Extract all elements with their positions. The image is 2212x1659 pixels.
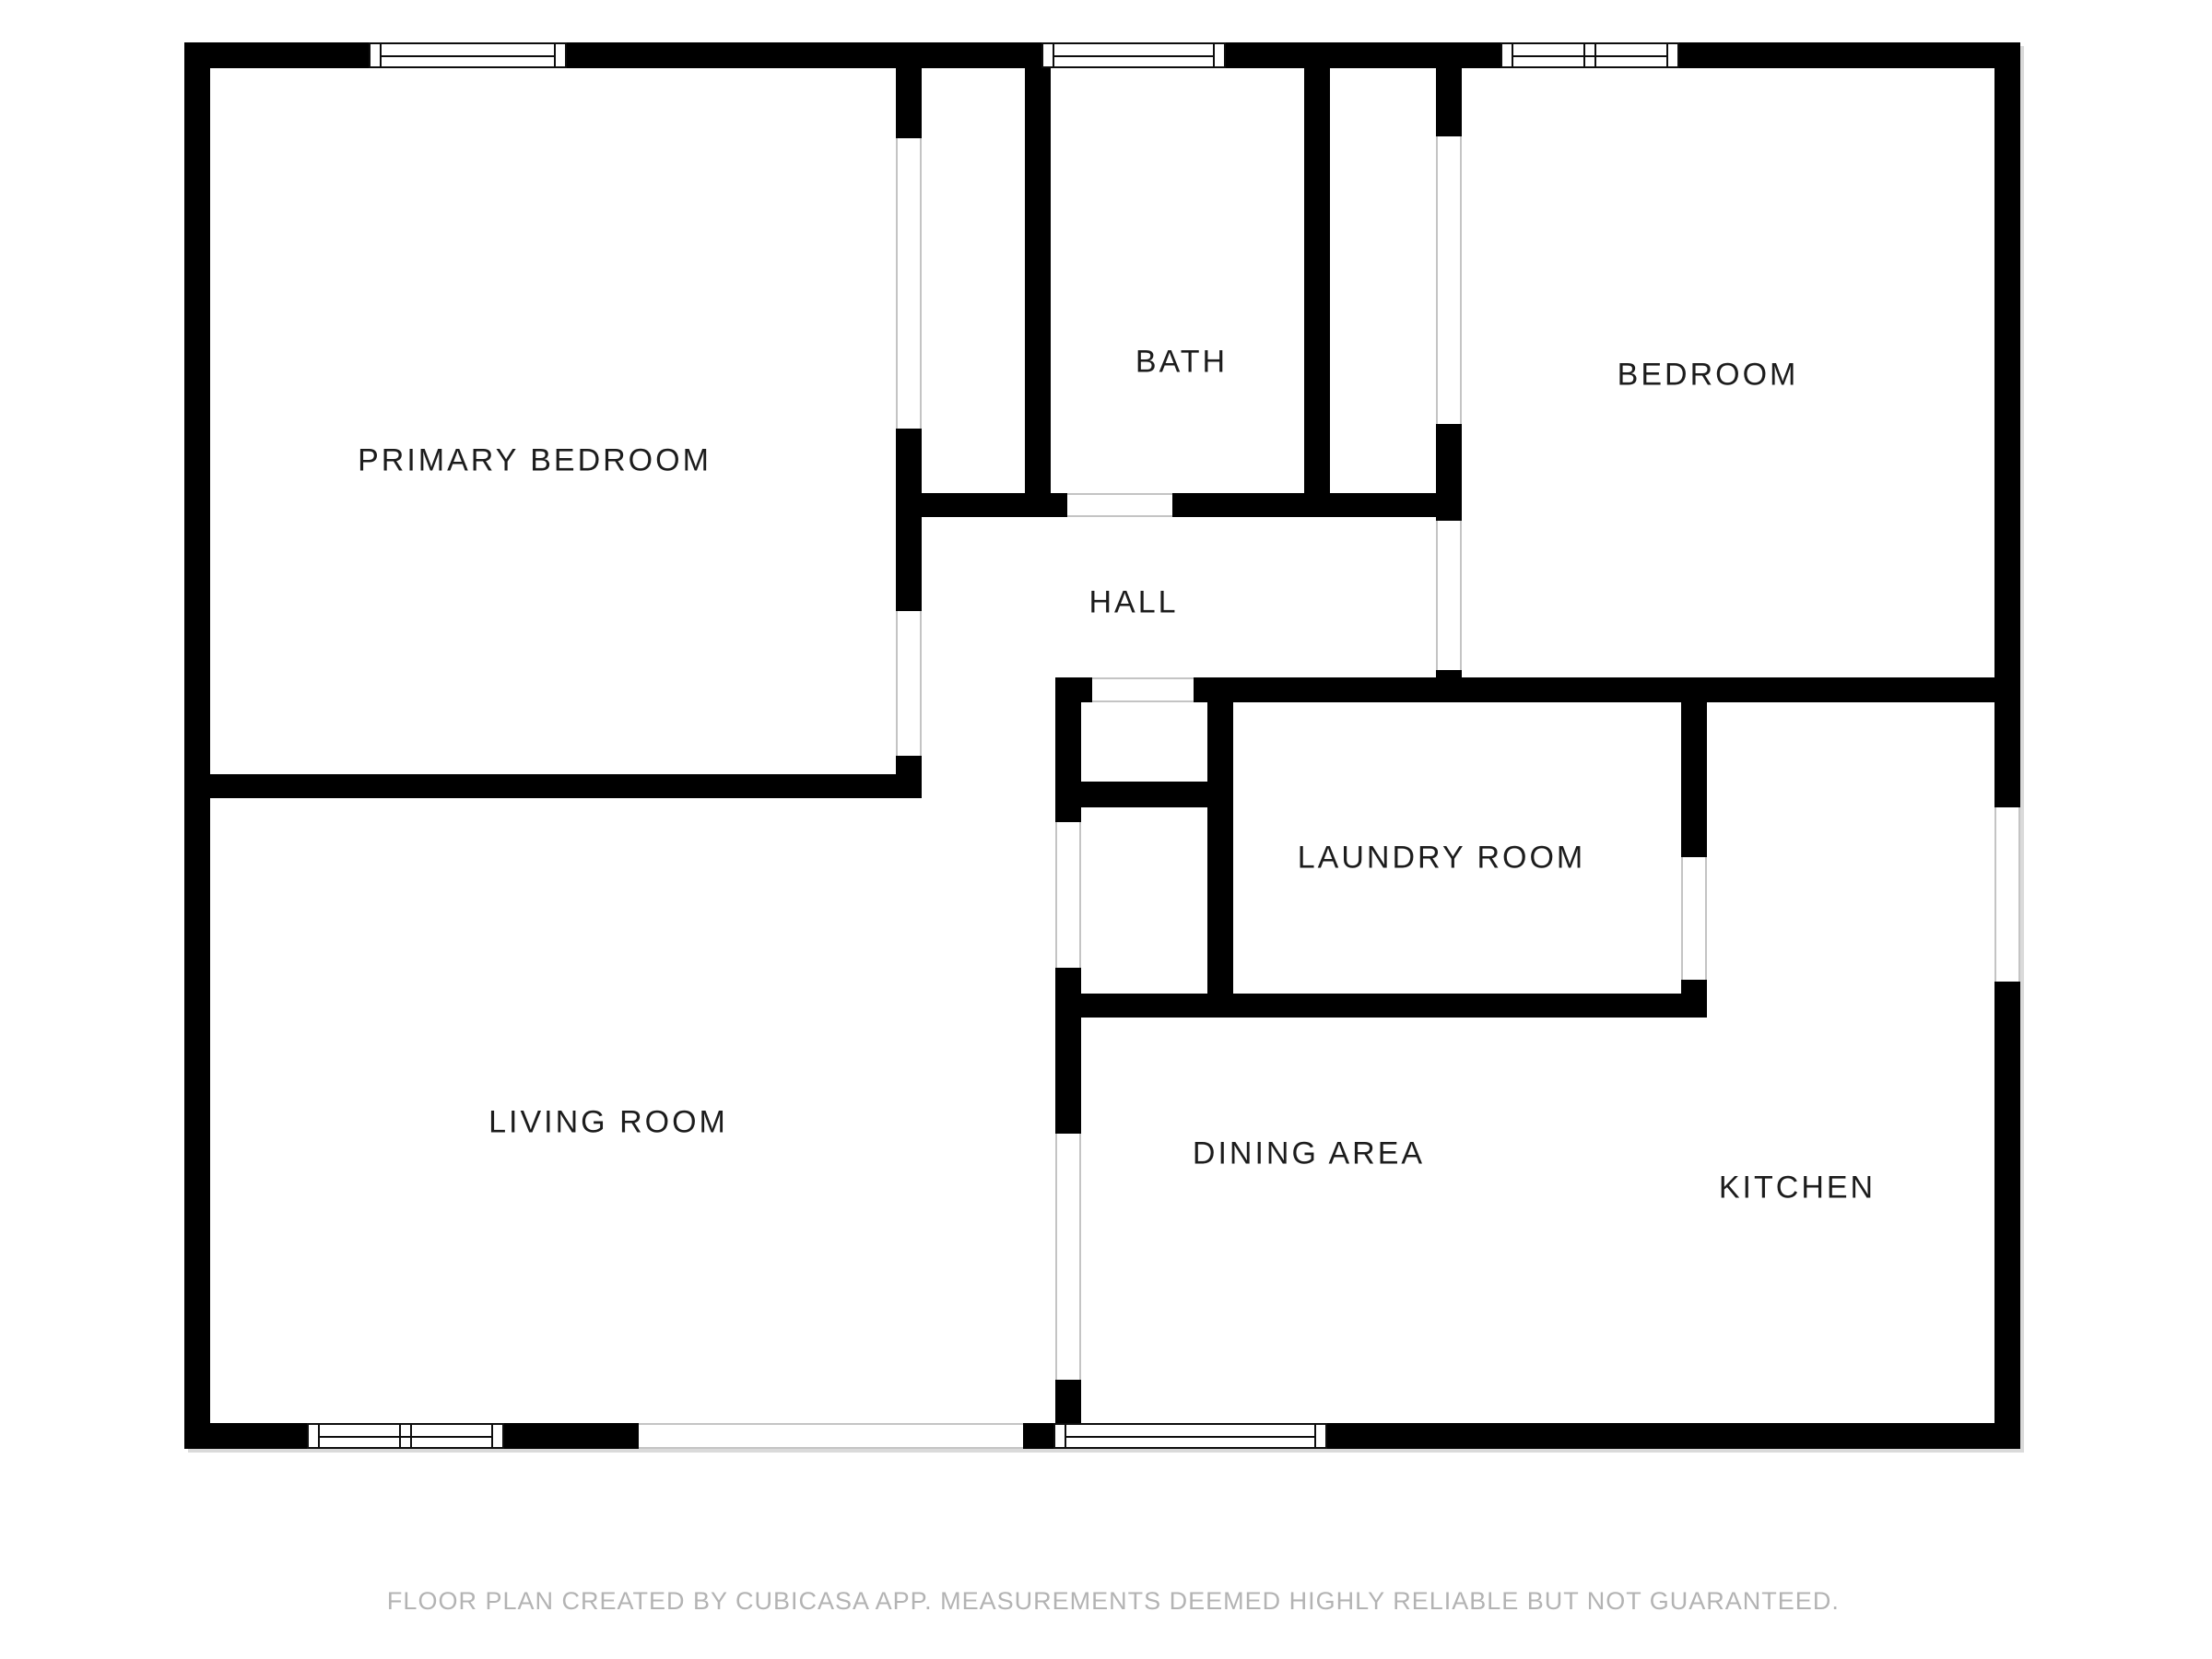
window-primary-bedroom-window [369,42,567,68]
opening-jamb [920,138,922,429]
window-bedroom-window [1500,42,1679,68]
wall-outer-left [184,42,210,1449]
window-frame-cap [1594,44,1596,66]
wall-bath-right [1304,68,1330,517]
window-frame-cap [491,1425,493,1447]
wall-divider-mid [1055,968,1081,1134]
opening-jamb [2018,807,2020,982]
opening-jamb [1681,857,1683,980]
wall-hall-top-east [1172,493,1462,517]
room-label-hall: HALL [1088,585,1178,621]
window-glass-line [1512,55,1668,57]
opening-entry-opening [639,1423,1023,1449]
room-label-bath: BATH [1135,345,1228,381]
window-frame-cap [318,1425,320,1447]
opening-jamb [896,138,898,429]
opening-primary-bedroom-door [896,611,922,756]
window-dining-window [1053,1423,1327,1449]
opening-laundry-kitchen-door [1681,857,1707,980]
opening-nook-opening [1055,822,1081,968]
window-frame-cap [1666,44,1668,66]
window-frame-cap [1512,44,1513,66]
opening-bedroom-door [1436,521,1462,670]
wall-primary-right-mid [896,429,922,611]
room-label-living-room: LIVING ROOM [488,1105,728,1141]
wall-bedroom-left-mid [1436,424,1462,521]
window-glass-line [1053,55,1215,57]
room-label-kitchen: KITCHEN [1719,1171,1876,1206]
opening-jamb [639,1447,1023,1449]
opening-kitchen-window-opening [1994,807,2020,982]
opening-jamb [1079,822,1081,968]
opening-jamb [1067,515,1172,517]
wall-divider-stub [1055,1380,1081,1423]
opening-jamb [1092,700,1194,702]
window-frame-cap [1583,44,1585,66]
wall-bedroom-bottom [1194,677,2020,702]
window-frame-cap [1053,44,1054,66]
opening-primary-closet-opening [896,138,922,429]
opening-jamb [1079,1134,1081,1380]
opening-jamb [1994,807,1996,982]
room-label-bedroom: BEDROOM [1618,358,1799,394]
opening-jamb [1055,1134,1057,1380]
window-bath-window [1041,42,1226,68]
wall-primary-right-upper [896,68,922,138]
opening-jamb [1436,521,1438,670]
window-frame-cap [399,1425,401,1447]
footer-disclaimer: FLOOR PLAN CREATED BY CUBICASA APP. MEAS… [387,1587,1840,1616]
opening-jamb [1436,136,1438,424]
room-label-primary-bedroom: PRIMARY BEDROOM [358,443,712,479]
opening-jamb [1705,857,1707,980]
floor-plan-canvas: PRIMARY BEDROOMBATHBEDROOMHALLLAUNDRY RO… [0,0,2212,1659]
wall-bedroom-left-upper [1436,68,1462,136]
window-frame-cap [1213,44,1215,66]
opening-jamb [1460,521,1462,670]
wall-laundry-bottom [1055,994,1707,1018]
opening-jamb [896,611,898,756]
room-label-dining-area: DINING AREA [1193,1136,1425,1172]
wall-divider-upper [1055,680,1081,822]
wall-laundry-left [1207,680,1233,1018]
window-glass-line [1065,1436,1316,1438]
opening-jamb [1067,493,1172,495]
window-frame-cap [380,44,382,66]
window-living-room-window [307,1423,504,1449]
opening-jamb [639,1423,1023,1425]
opening-living-dining-opening [1055,1134,1081,1380]
window-frame-cap [410,1425,412,1447]
floor-plan: PRIMARY BEDROOMBATHBEDROOMHALLLAUNDRY RO… [0,0,2212,1659]
window-frame-cap [1065,1425,1066,1447]
window-frame-cap [1314,1425,1316,1447]
room-label-laundry-room: LAUNDRY ROOM [1298,841,1585,877]
window-frame-cap [554,44,556,66]
wall-closetbox-bottom [1081,782,1207,807]
opening-jamb [920,611,922,756]
opening-bath-door [1067,493,1172,517]
window-glass-line [318,1436,493,1438]
wall-bath-left [1025,68,1051,517]
opening-jamb [1055,822,1057,968]
wall-primary-bottom [184,774,922,798]
opening-hall-closet-opening [1092,677,1194,702]
opening-jamb [1460,136,1462,424]
window-glass-line [380,55,556,57]
wall-laundry-right-upper [1681,677,1707,857]
wall-outer-right [1994,42,2020,1449]
opening-bedroom-closet-opening [1436,136,1462,424]
opening-jamb [1092,677,1194,679]
wall-hall-top-west [896,493,1067,517]
